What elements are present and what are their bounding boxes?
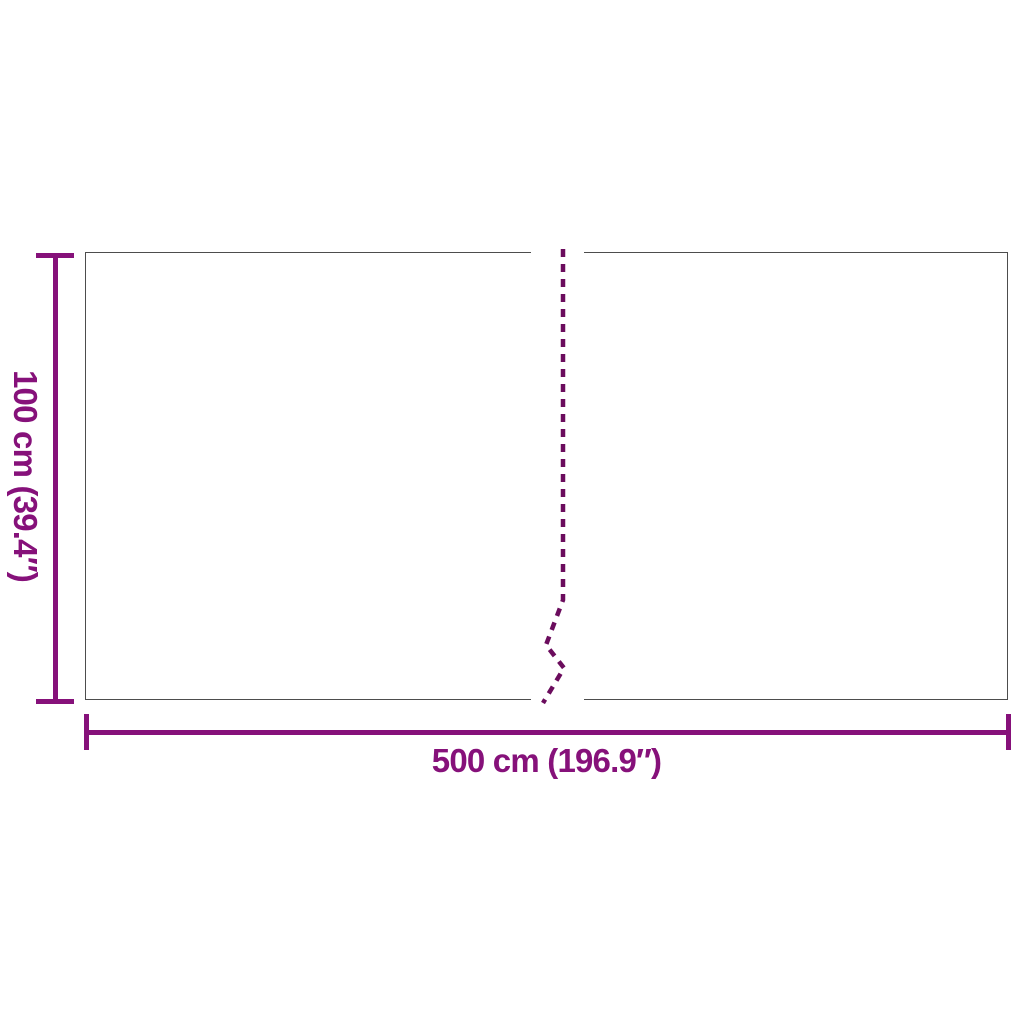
product-dimension-diagram: 100 cm (39.4″) 500 cm (196.9″)	[0, 0, 1024, 1024]
width-dimension-line	[86, 730, 1008, 735]
outline-gap-top	[531, 249, 584, 257]
height-label: 100 cm (39.4″)	[2, 253, 48, 699]
width-label: 500 cm (196.9″)	[85, 742, 1008, 780]
height-dimension-cap-bottom	[36, 699, 74, 704]
outline-gap-bottom	[531, 696, 584, 704]
product-outline	[85, 252, 1008, 700]
height-dimension-line	[53, 255, 58, 701]
